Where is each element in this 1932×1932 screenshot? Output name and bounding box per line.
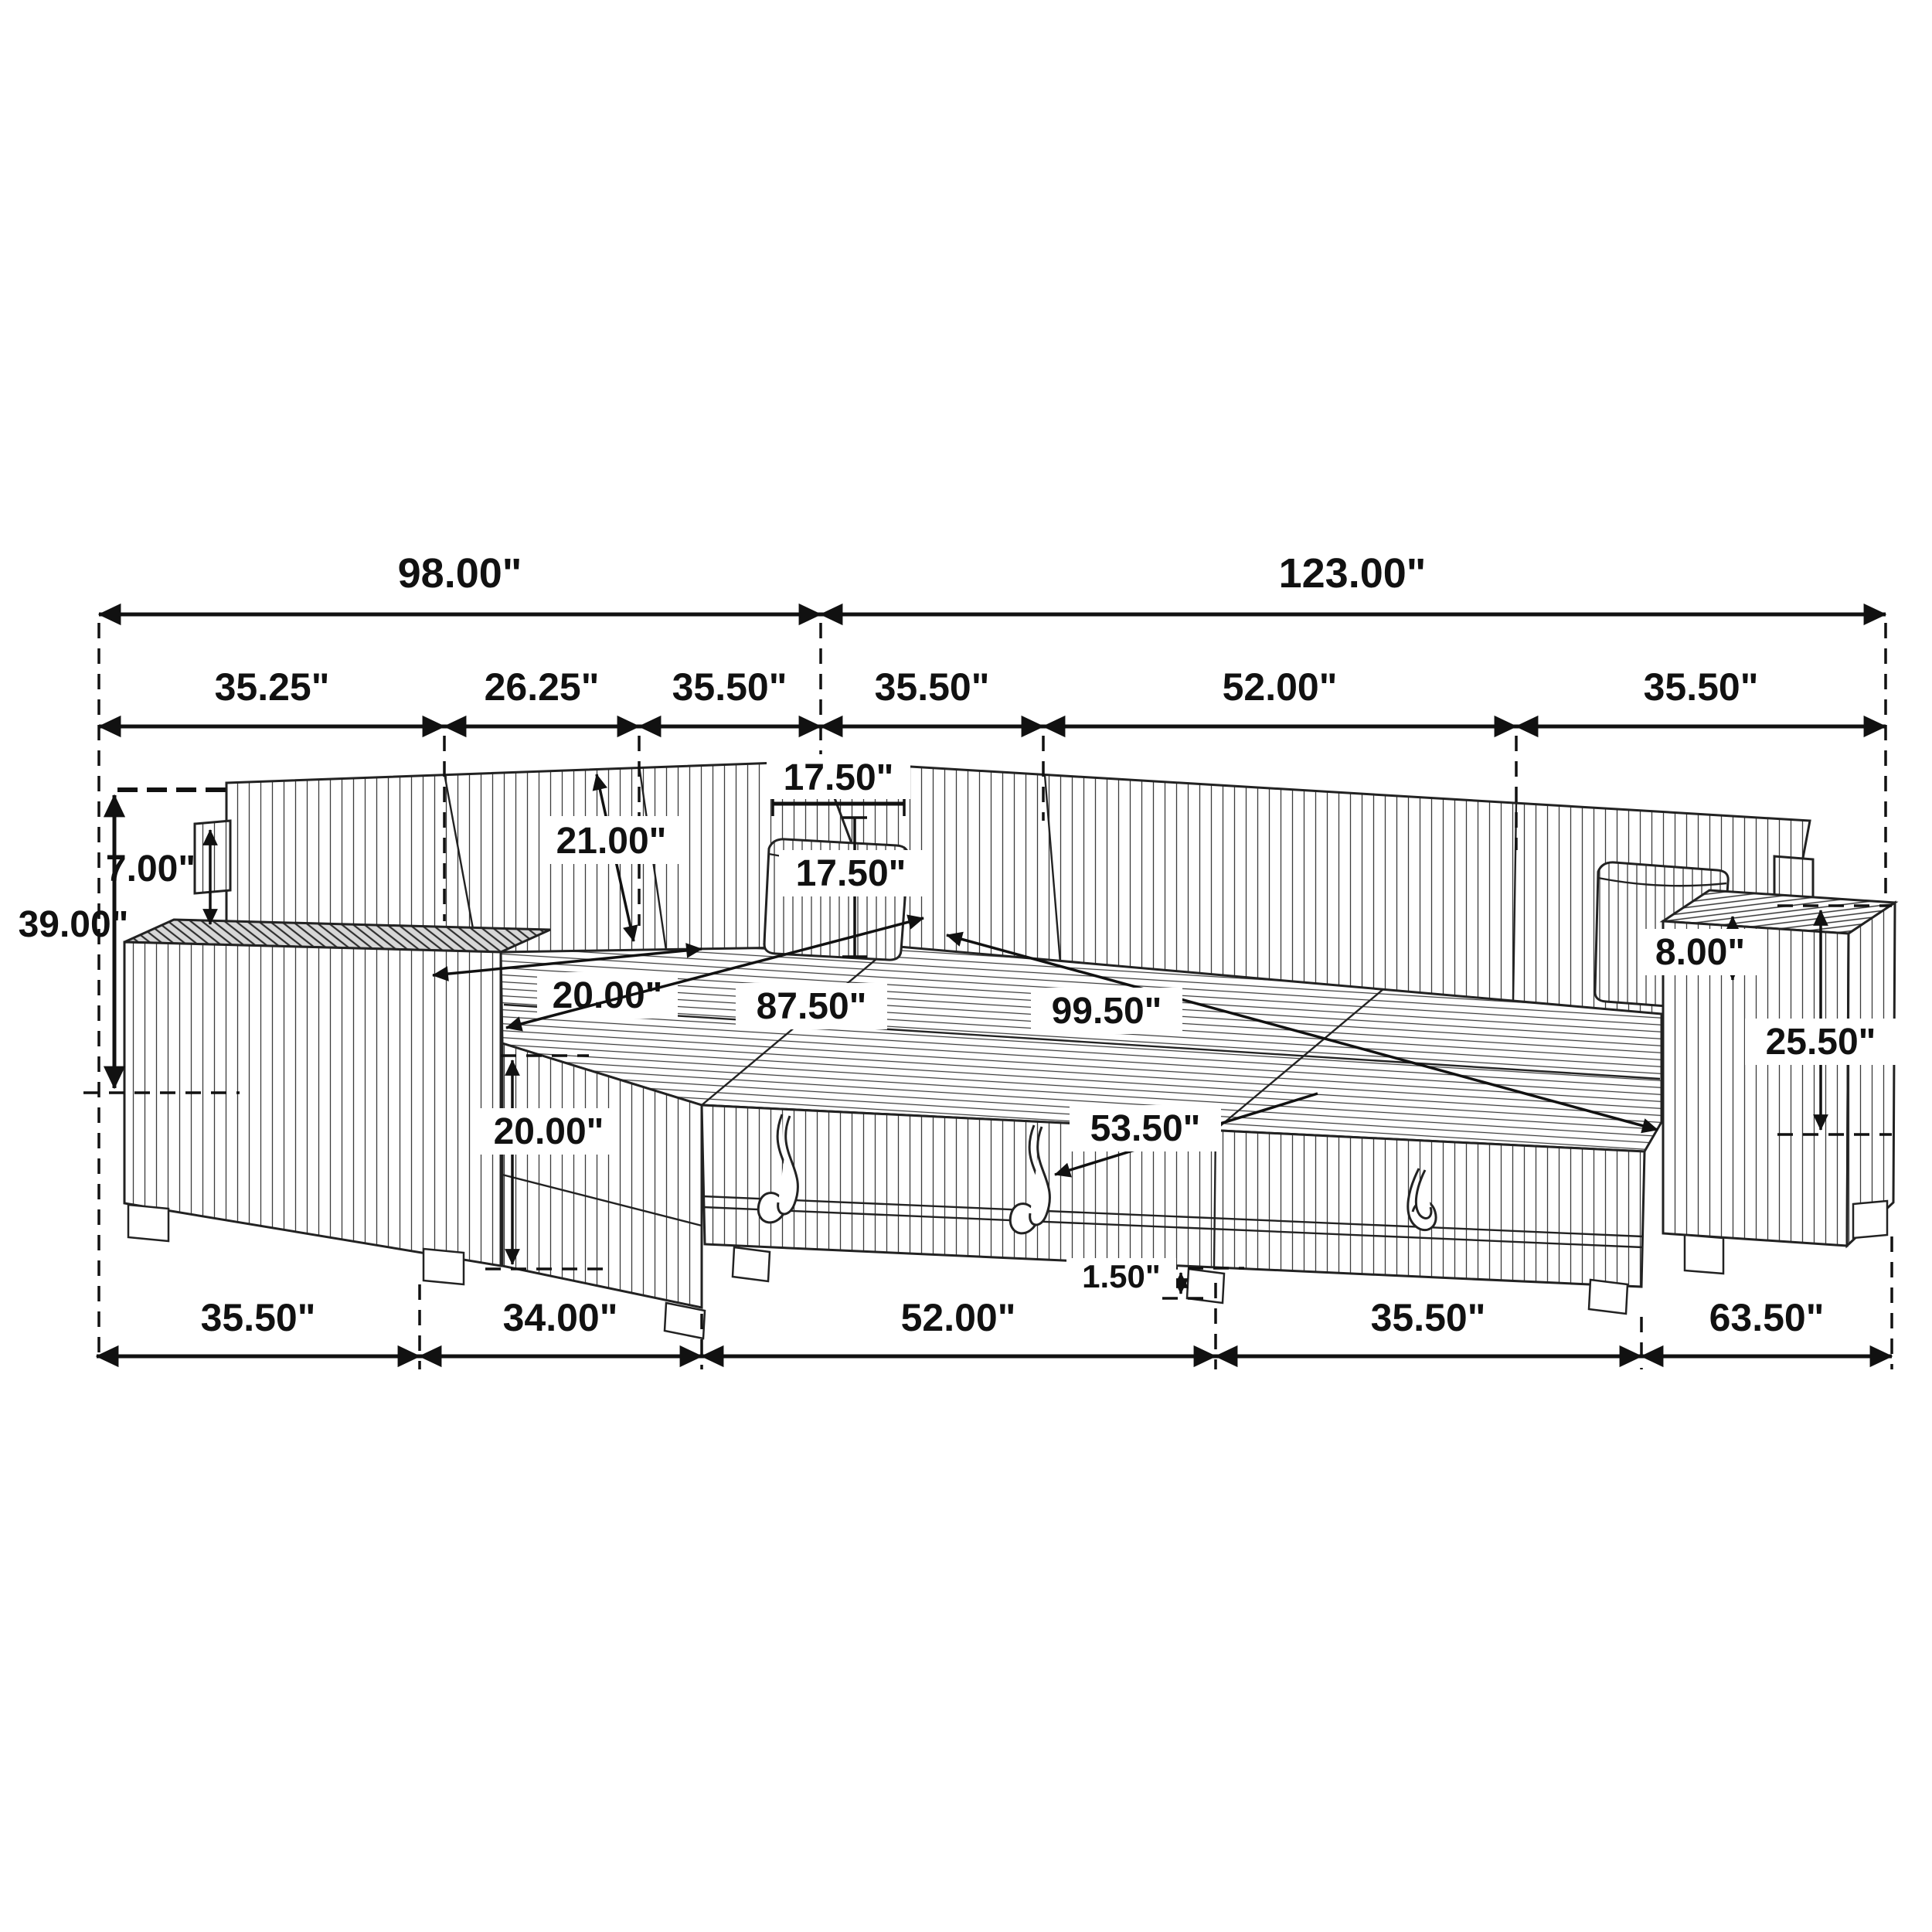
dim-label-8: 8.00" [1655,932,1745,973]
dim-top-left-98: 98.00" [99,550,821,614]
dim-label-seat-height: 20.00" [494,1111,604,1152]
dim-label-123: 123.00" [1279,550,1427,597]
dim-label-b-52-00: 52.00" [901,1296,1016,1339]
dim-label-pillow-w: 17.50" [784,757,894,798]
dim-label-21: 21.00" [556,821,667,862]
dim-label-87-50: 87.50" [757,986,867,1027]
arm-leg [423,1249,464,1284]
dim-label-53-50: 53.50" [1090,1108,1201,1149]
chaise-leg [665,1303,705,1338]
sofa-drawing [124,761,1895,1338]
dim-label-35-50-a: 35.50" [672,665,787,709]
dim-label-39: 39.00" [19,904,129,945]
dim-label-35-50-b: 35.50" [875,665,990,709]
dim-label-b-35-50-a: 35.50" [201,1296,316,1339]
arm-leg [1685,1235,1723,1274]
dim-label-35-25: 35.25" [215,665,330,709]
dim-label-99-50: 99.50" [1052,991,1162,1032]
bed-leg [733,1247,770,1281]
dim-label-b-63-50: 63.50" [1709,1296,1825,1339]
dim-label-pillow-h: 17.50" [796,853,906,894]
dim-label-25-50: 25.50" [1766,1022,1876,1063]
dim-label-b-34-00: 34.00" [503,1296,618,1339]
arm-leg [1853,1201,1887,1238]
dim-label-26-25: 26.25" [485,665,600,709]
dim-label-1-50: 1.50" [1082,1258,1161,1294]
arm-leg [128,1205,168,1241]
dim-label-98: 98.00" [398,550,522,597]
dim-label-35-50-c: 35.50" [1644,665,1759,709]
dim-top-right-123: 123.00" [821,550,1886,614]
sofa-dimension-diagram: 98.00" 123.00" 35.25" 26.25" 35.50" 35.5… [0,0,1932,1932]
dim-label-52-00: 52.00" [1223,665,1338,709]
left-arm-back-post [195,821,230,893]
bed-leg [1589,1280,1628,1314]
dim-upper-row: 35.25" 26.25" 35.50" 35.50" 52.00" 35.50… [99,665,1886,726]
dim-label-b-35-50-b: 35.50" [1371,1296,1486,1339]
dim-label-7: 7.00" [106,849,196,889]
